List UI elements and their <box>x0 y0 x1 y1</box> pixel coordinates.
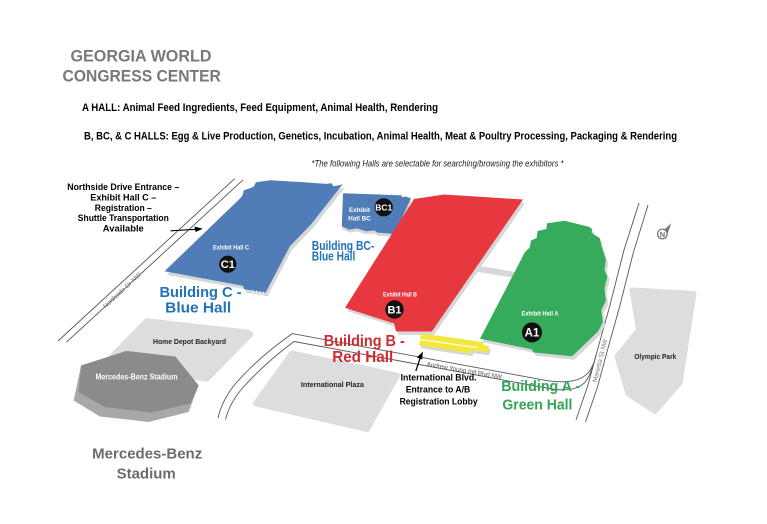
svg-text:Building A -: Building A - <box>501 378 580 395</box>
svg-text:Stadium: Stadium <box>117 465 176 482</box>
svg-text:Exhibit Hall C –: Exhibit Hall C – <box>90 193 156 203</box>
svg-text:Green Hall: Green Hall <box>502 397 572 414</box>
svg-text:Entrance to A/B: Entrance to A/B <box>406 385 471 396</box>
svg-text:Shuttle Transportation: Shuttle Transportation <box>78 213 169 223</box>
svg-text:Registration Lobby: Registration Lobby <box>400 396 479 407</box>
svg-text:Exhibit Hall C: Exhibit Hall C <box>213 244 249 251</box>
svg-text:B, BC, & C HALLS: Egg & Live P: B, BC, & C HALLS: Egg & Live Production,… <box>84 131 677 143</box>
svg-text:Blue Hall: Blue Hall <box>312 250 356 264</box>
svg-text:BC1: BC1 <box>375 203 392 213</box>
svg-text:International Blvd.: International Blvd. <box>401 372 477 383</box>
svg-text:Exhibit Hall A: Exhibit Hall A <box>522 311 559 318</box>
svg-text:CONGRESS CENTER: CONGRESS CENTER <box>63 68 221 86</box>
svg-text:Registration –: Registration – <box>95 203 152 213</box>
svg-text:GEORGIA WORLD: GEORGIA WORLD <box>71 47 212 65</box>
svg-text:A HALL: Animal Feed Ingredient: A HALL: Animal Feed Ingredients, Feed Eq… <box>82 102 438 114</box>
svg-text:International Plaza: International Plaza <box>301 380 365 389</box>
svg-text:Olympic Park: Olympic Park <box>634 354 676 361</box>
svg-text:N: N <box>660 230 665 239</box>
svg-text:Mercedes-Benz: Mercedes-Benz <box>92 446 202 463</box>
svg-text:Home Depot Backyard: Home Depot Backyard <box>153 337 226 346</box>
svg-text:Exhibit Hall B: Exhibit Hall B <box>383 291 417 298</box>
svg-text:Mercedes-Benz Stadium: Mercedes-Benz Stadium <box>96 373 178 382</box>
svg-text:Building C -: Building C - <box>160 285 242 301</box>
svg-text:Hall BC: Hall BC <box>348 216 371 223</box>
svg-text:Red Hall: Red Hall <box>332 349 393 366</box>
svg-text:C1: C1 <box>221 259 235 271</box>
svg-text:*The following Halls are selec: *The following Halls are selectable for … <box>312 159 564 170</box>
svg-text:Northside Drive Entrance –: Northside Drive Entrance – <box>67 182 179 192</box>
svg-text:Building B -: Building B - <box>324 333 405 350</box>
svg-text:A1: A1 <box>525 328 540 340</box>
svg-text:B1: B1 <box>387 304 401 316</box>
svg-text:Blue Hall: Blue Hall <box>165 301 231 317</box>
svg-text:Exhibit: Exhibit <box>349 207 371 214</box>
svg-text:Available: Available <box>103 224 144 234</box>
